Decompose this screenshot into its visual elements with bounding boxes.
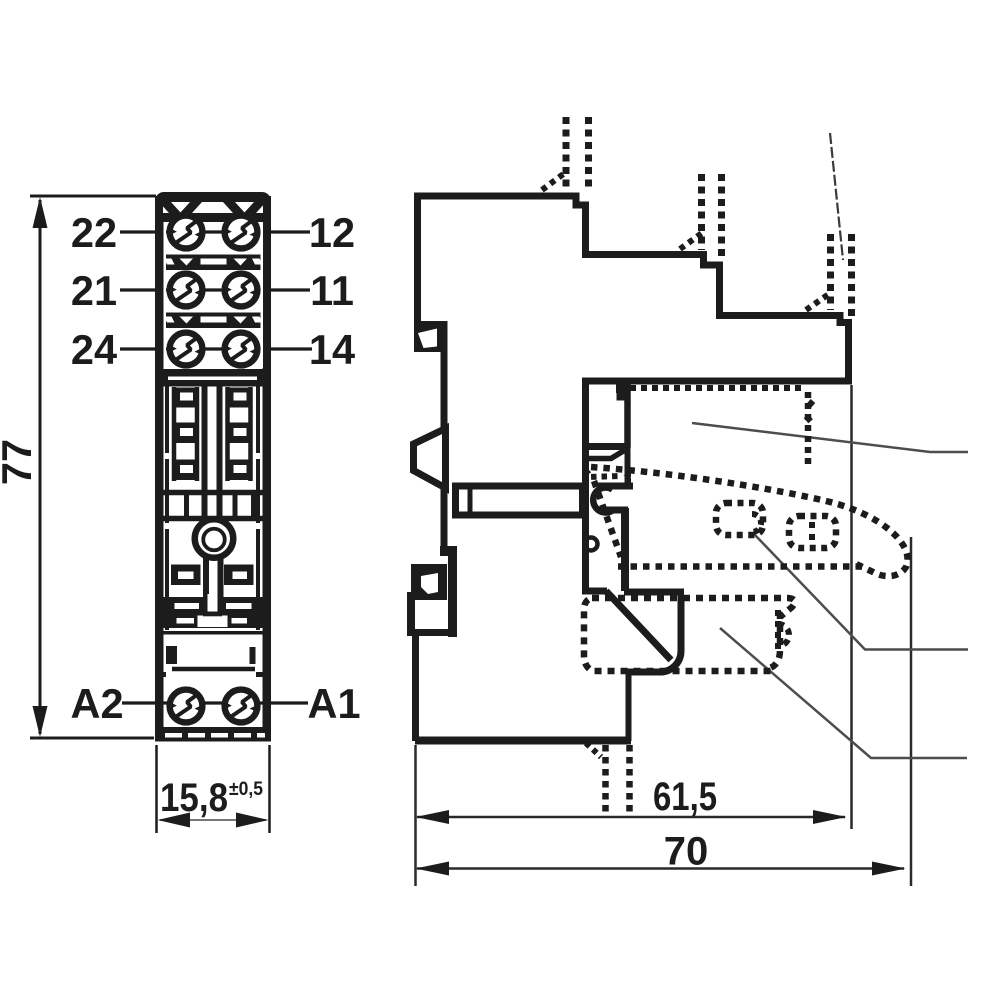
svg-text:A1: A1: [307, 680, 360, 727]
svg-text:61,5: 61,5: [653, 775, 717, 819]
svg-text:22: 22: [71, 209, 117, 256]
svg-text:12: 12: [309, 209, 355, 256]
svg-text:77: 77: [0, 439, 40, 485]
svg-text:21: 21: [71, 267, 117, 314]
svg-text:24: 24: [71, 326, 117, 373]
svg-text:±0,5: ±0,5: [229, 779, 263, 800]
svg-text:70: 70: [664, 830, 709, 874]
svg-text:A2: A2: [70, 680, 123, 727]
svg-text:14: 14: [309, 326, 355, 373]
svg-text:11: 11: [310, 267, 354, 314]
svg-text:15,8: 15,8: [160, 776, 228, 820]
